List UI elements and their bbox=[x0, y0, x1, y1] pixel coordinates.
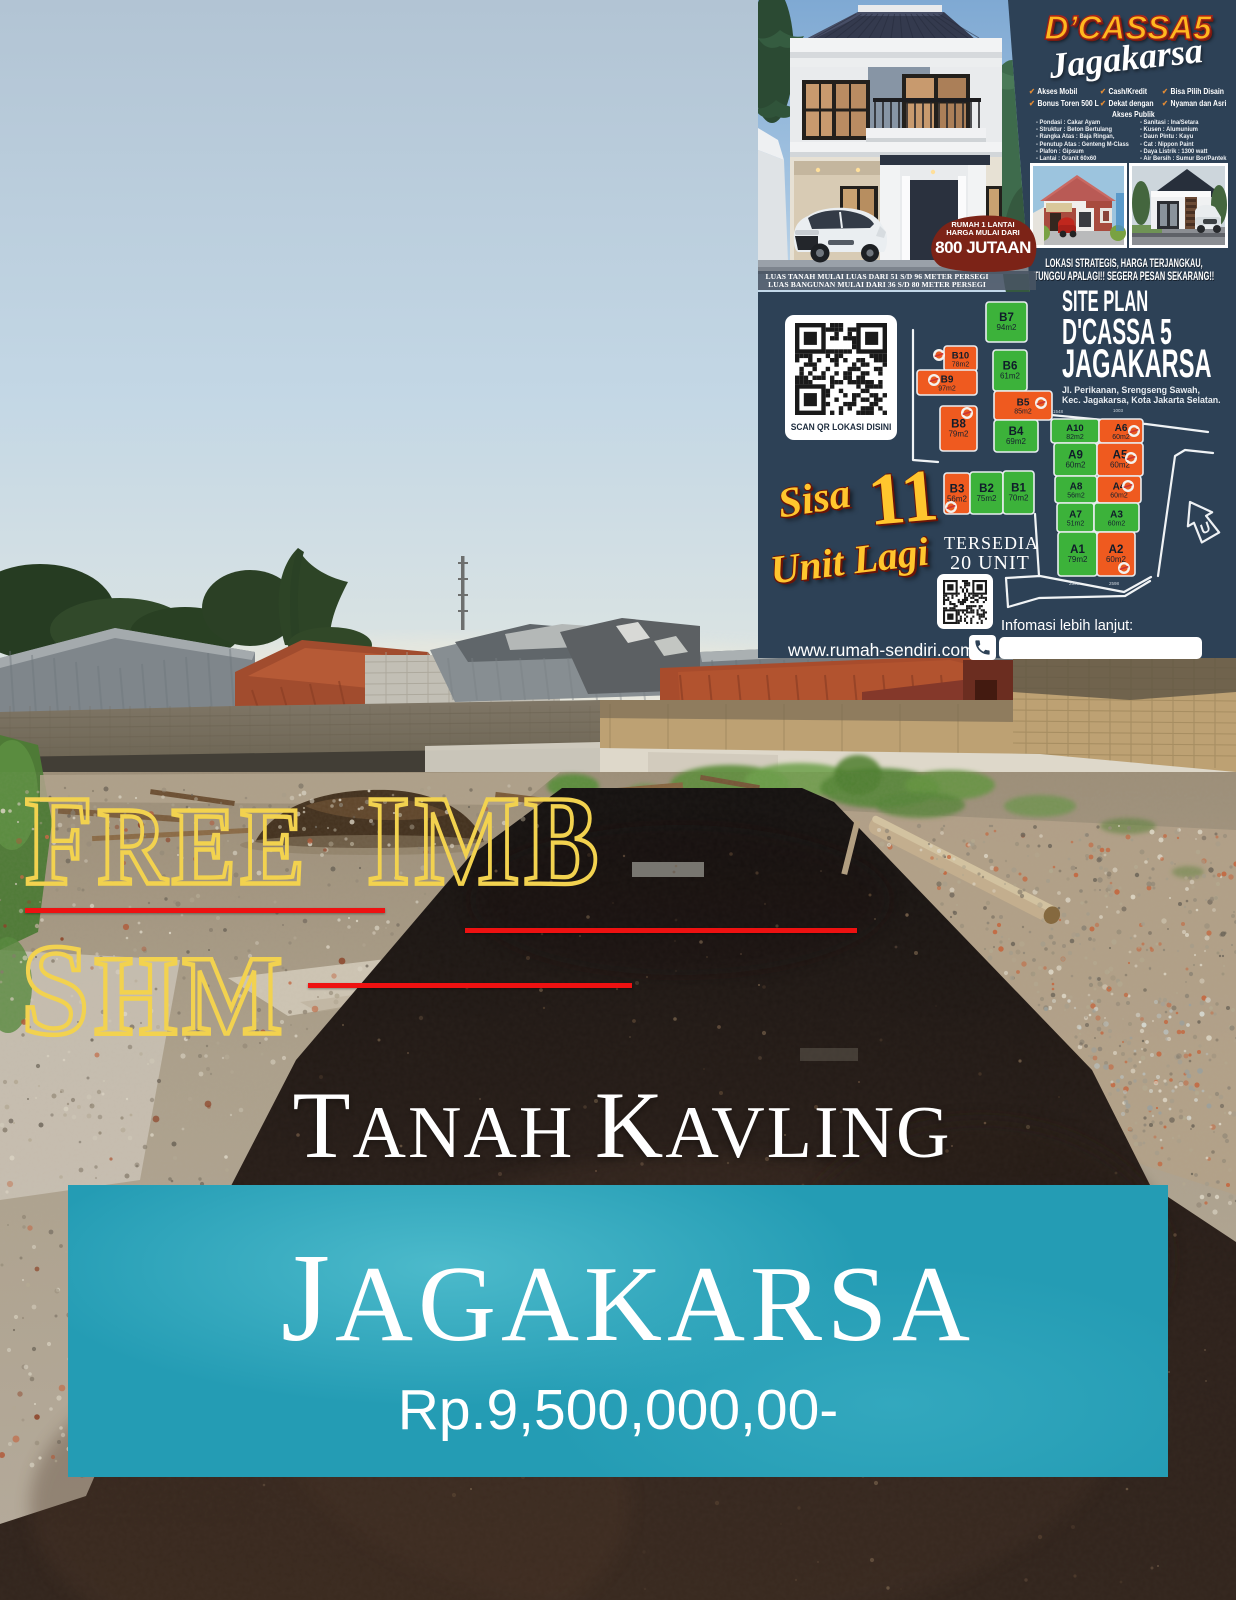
svg-text:56m2: 56m2 bbox=[1067, 493, 1085, 500]
svg-text:B9: B9 bbox=[941, 375, 954, 386]
svg-text:B2: B2 bbox=[979, 483, 994, 495]
svg-text:B6: B6 bbox=[1003, 361, 1018, 373]
svg-text:B3: B3 bbox=[950, 484, 965, 496]
svg-text:56m2: 56m2 bbox=[947, 495, 968, 504]
svg-text:60m2: 60m2 bbox=[1112, 434, 1130, 441]
svg-text:69m2: 69m2 bbox=[1006, 437, 1027, 446]
svg-text:A8: A8 bbox=[1070, 482, 1083, 493]
svg-text:2598: 2598 bbox=[1069, 581, 1080, 586]
svg-text:79m2: 79m2 bbox=[1067, 555, 1088, 564]
svg-text:85m2: 85m2 bbox=[1014, 409, 1032, 416]
svg-text:70m2: 70m2 bbox=[1008, 494, 1029, 503]
svg-text:A6: A6 bbox=[1115, 423, 1128, 434]
svg-text:U: U bbox=[1197, 518, 1215, 537]
svg-text:B5: B5 bbox=[1017, 398, 1030, 409]
svg-text:1003: 1003 bbox=[1113, 408, 1124, 413]
svg-text:B7: B7 bbox=[999, 312, 1014, 324]
svg-text:A3: A3 bbox=[1110, 510, 1123, 521]
svg-text:97m2: 97m2 bbox=[938, 386, 956, 393]
svg-text:B10: B10 bbox=[952, 351, 969, 362]
svg-text:75m2: 75m2 bbox=[976, 494, 997, 503]
svg-text:94m2: 94m2 bbox=[996, 323, 1017, 332]
svg-text:82m2: 82m2 bbox=[1066, 434, 1084, 441]
svg-text:61m2: 61m2 bbox=[1000, 372, 1021, 381]
svg-text:1548: 1548 bbox=[1053, 409, 1064, 414]
svg-text:78m2: 78m2 bbox=[952, 362, 970, 369]
svg-text:A7: A7 bbox=[1069, 510, 1082, 521]
svg-text:A5: A5 bbox=[1113, 450, 1128, 462]
svg-text:B4: B4 bbox=[1009, 426, 1024, 438]
svg-text:B8: B8 bbox=[951, 419, 966, 431]
svg-text:B1: B1 bbox=[1011, 483, 1026, 495]
svg-text:79m2: 79m2 bbox=[948, 430, 969, 439]
svg-text:A4: A4 bbox=[1113, 482, 1126, 493]
svg-text:2598: 2598 bbox=[1109, 581, 1120, 586]
svg-text:A2: A2 bbox=[1109, 544, 1124, 556]
svg-text:60m2: 60m2 bbox=[1065, 461, 1086, 470]
svg-text:A1: A1 bbox=[1070, 544, 1085, 556]
svg-text:51m2: 51m2 bbox=[1067, 521, 1085, 528]
svg-text:60m2: 60m2 bbox=[1106, 555, 1127, 564]
svg-text:A10: A10 bbox=[1066, 423, 1083, 434]
svg-text:60m2: 60m2 bbox=[1110, 461, 1131, 470]
svg-text:A9: A9 bbox=[1068, 450, 1083, 462]
svg-text:60m2: 60m2 bbox=[1108, 521, 1126, 528]
svg-text:60m2: 60m2 bbox=[1110, 493, 1128, 500]
